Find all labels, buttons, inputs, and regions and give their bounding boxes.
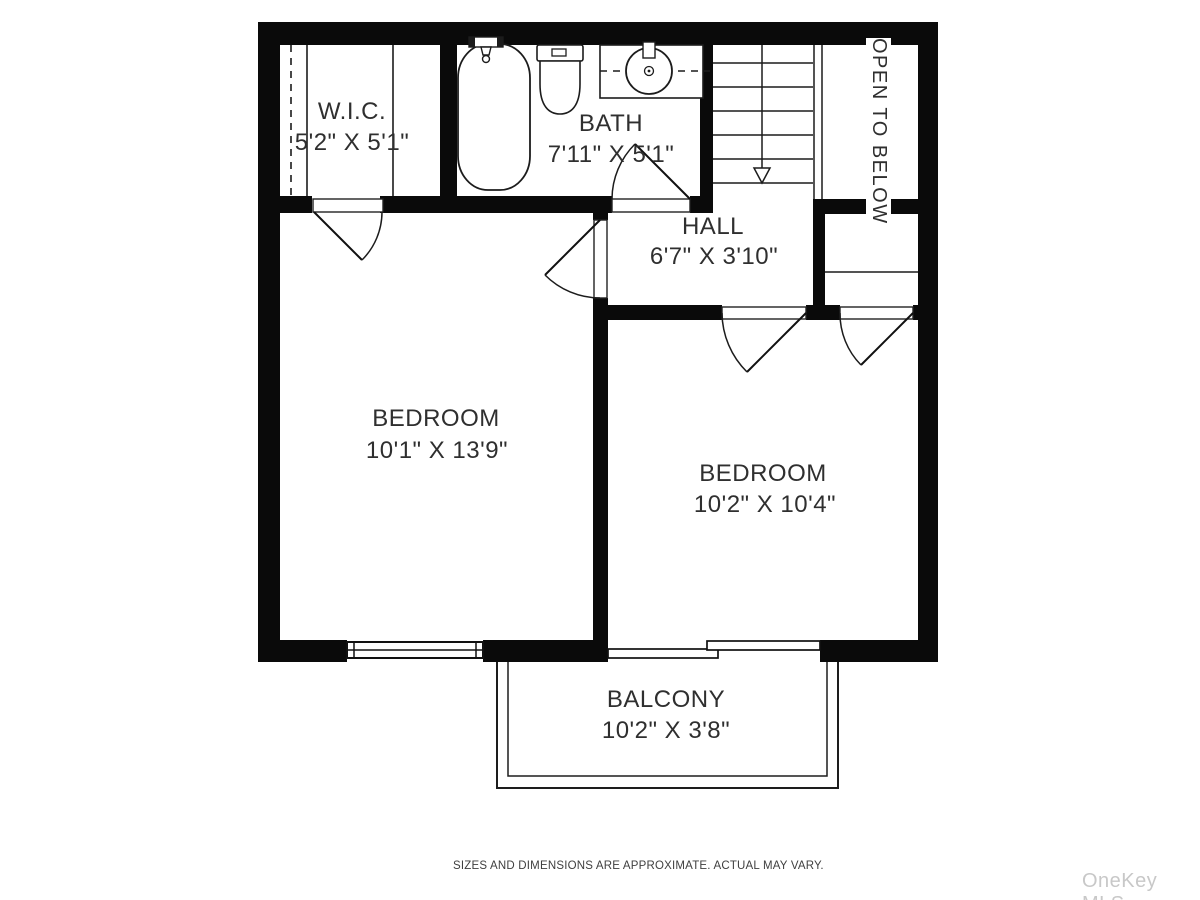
bedroom-left-door-arc <box>545 275 600 298</box>
floorplan-canvas: W.I.C. 5'2" X 5'1" BATH 7'11" X 5'1" HAL… <box>0 0 1200 900</box>
bedroom-right-label: BEDROOM <box>699 460 827 488</box>
sink-vanity <box>600 42 710 98</box>
bedroom-left-dimensions: 10'1" X 13'9" <box>366 437 508 465</box>
bath-label: BATH <box>579 110 643 138</box>
hall-dimensions: 6'7" X 3'10" <box>650 243 778 271</box>
bath-door-threshold <box>612 199 690 212</box>
toilet-bowl <box>540 61 580 114</box>
stair-down-arrow-icon <box>754 168 770 183</box>
balcony-label: BALCONY <box>607 686 725 714</box>
hall-label: HALL <box>682 213 744 241</box>
sliding-door-panel-outer <box>707 641 820 650</box>
bedroom-left-door-threshold <box>594 220 607 298</box>
tub-faucet-icon <box>481 47 491 55</box>
wic-door-threshold <box>313 199 383 212</box>
bedroom-left-label: BEDROOM <box>372 405 500 433</box>
onekey-mls-watermark: OneKey MLS <box>1082 870 1200 900</box>
toilet-flush-button <box>552 49 566 56</box>
bedroom-right-door-leaf <box>747 313 806 372</box>
bath-dimensions: 7'11" X 5'1" <box>548 141 675 169</box>
bedroom-left-door-leaf <box>545 220 600 275</box>
wic-dimensions: 5'2" X 5'1" <box>295 129 409 157</box>
bathtub <box>458 37 530 190</box>
window <box>347 642 483 658</box>
balcony-dimensions: 10'2" X 3'8" <box>602 717 730 745</box>
sliding-door <box>608 641 820 658</box>
wic-door-leaf <box>314 212 362 260</box>
sink-faucet-icon <box>643 42 655 58</box>
bedroom-right-door-threshold <box>722 307 806 319</box>
closet-door-threshold <box>840 307 913 319</box>
closet-door-arc <box>840 313 861 365</box>
stairs-down <box>713 45 822 199</box>
wic-door-arc <box>362 212 382 260</box>
sliding-door-panel-inner <box>608 649 718 658</box>
disclaimer-text: SIZES AND DIMENSIONS ARE APPROXIMATE. AC… <box>453 860 824 872</box>
bedroom-right-door-arc <box>722 313 747 372</box>
toilet <box>537 45 583 114</box>
bedroom-right-dimensions: 10'2" X 10'4" <box>694 491 836 519</box>
open-to-below-label: OPEN TO BELOW <box>866 38 891 225</box>
wic-label: W.I.C. <box>318 98 386 126</box>
closet-door-leaf <box>861 313 913 365</box>
